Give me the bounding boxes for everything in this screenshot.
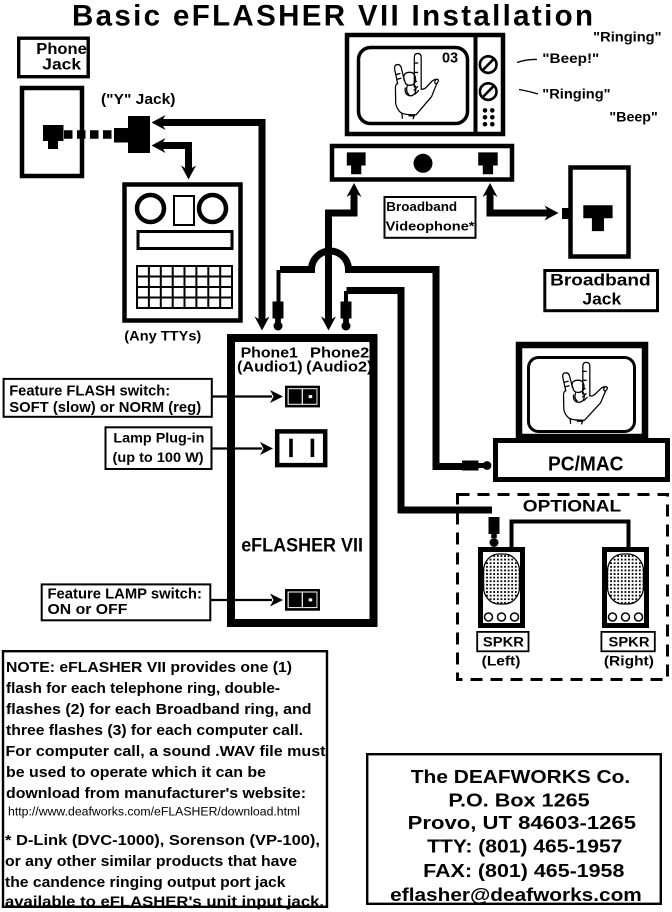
svg-text:Broadband: Broadband (386, 199, 457, 214)
svg-text:The DEAFWORKS Co.: The DEAFWORKS Co. (411, 767, 630, 787)
svg-text:flash for each telephone ring,: flash for each telephone ring, double- (6, 680, 280, 697)
svg-text:Feature LAMP switch:: Feature LAMP switch: (48, 585, 202, 602)
svg-text:be used to operate which it ca: be used to operate which it can be (6, 764, 266, 781)
svg-text:(Right): (Right) (604, 653, 654, 668)
svg-text:OPTIONAL: OPTIONAL (523, 496, 621, 515)
svg-text:"Beep!": "Beep!" (542, 51, 599, 66)
svg-text:Basic eFLASHER VII Installatio: Basic eFLASHER VII Installation (72, 0, 593, 33)
svg-text:ON or OFF: ON or OFF (48, 601, 128, 618)
svg-text:"Beep": "Beep" (609, 110, 657, 125)
svg-text:Feature FLASH switch:: Feature FLASH switch: (9, 383, 170, 400)
svg-text:* D-Link (DVC-1000), Sorenson: * D-Link (DVC-1000), Sorenson (VP-100), (5, 832, 320, 849)
svg-text:Phone: Phone (36, 41, 87, 58)
svg-text:FAX: (801) 465-1958: FAX: (801) 465-1958 (423, 861, 624, 881)
svg-text:TTY: (801) 465-1957: TTY: (801) 465-1957 (427, 836, 622, 856)
svg-text:(Any TTYs): (Any TTYs) (124, 328, 201, 344)
svg-text:available to eFLASHER's unit i: available to eFLASHER's unit input jack. (5, 894, 324, 911)
svg-text:eFLASHER VII: eFLASHER VII (241, 535, 363, 557)
svg-text:(Audio2): (Audio2) (306, 358, 372, 375)
svg-text:Videophone*: Videophone* (386, 219, 476, 234)
svg-text:Lamp Plug-in: Lamp Plug-in (113, 429, 204, 445)
svg-text:P.O. Box 1265: P.O. Box 1265 (448, 790, 589, 810)
svg-text:the candence ringing output po: the candence ringing output port jack (5, 874, 286, 891)
svg-text:SOFT (slow) or NORM (reg): SOFT (slow) or NORM (reg) (9, 399, 201, 416)
svg-text:download from manufacturer's w: download from manufacturer's website: (6, 785, 306, 802)
svg-text:flashes (2) for each Broadband: flashes (2) for each Broadband ring, and (6, 701, 312, 718)
svg-text:(Left): (Left) (482, 653, 521, 668)
svg-text:(up to 100 W): (up to 100 W) (113, 449, 204, 465)
svg-text:Jack: Jack (42, 56, 81, 73)
svg-text:three flashes (3) for each com: three flashes (3) for each computer call… (6, 722, 303, 739)
svg-text:For computer call, a sound .WA: For computer call, a sound .WAV file mus… (6, 743, 326, 760)
svg-text:SPKR: SPKR (483, 635, 524, 650)
svg-text:http://www.deafworks.com/eFLAS: http://www.deafworks.com/eFLASHER/downlo… (8, 805, 300, 819)
svg-text:"Ringing": "Ringing" (593, 30, 661, 45)
svg-text:(Audio1): (Audio1) (237, 358, 303, 375)
svg-text:Broadband: Broadband (550, 271, 651, 289)
svg-text:03: 03 (442, 51, 458, 67)
svg-text:eflasher@deafworks.com: eflasher@deafworks.com (390, 885, 642, 905)
svg-text:Provo, UT 84603-1265: Provo, UT 84603-1265 (408, 813, 636, 833)
svg-text:or any other similar products: or any other similar products that have (5, 853, 297, 870)
svg-text:"Ringing": "Ringing" (542, 87, 610, 102)
svg-text:Jack: Jack (582, 290, 622, 308)
svg-text:NOTE: eFLASHER VII provides on: NOTE: eFLASHER VII provides one (1) (6, 659, 292, 676)
svg-text:("Y" Jack): ("Y" Jack) (101, 92, 176, 108)
svg-text:PC/MAC: PC/MAC (548, 454, 624, 476)
svg-text:SPKR: SPKR (609, 635, 650, 650)
